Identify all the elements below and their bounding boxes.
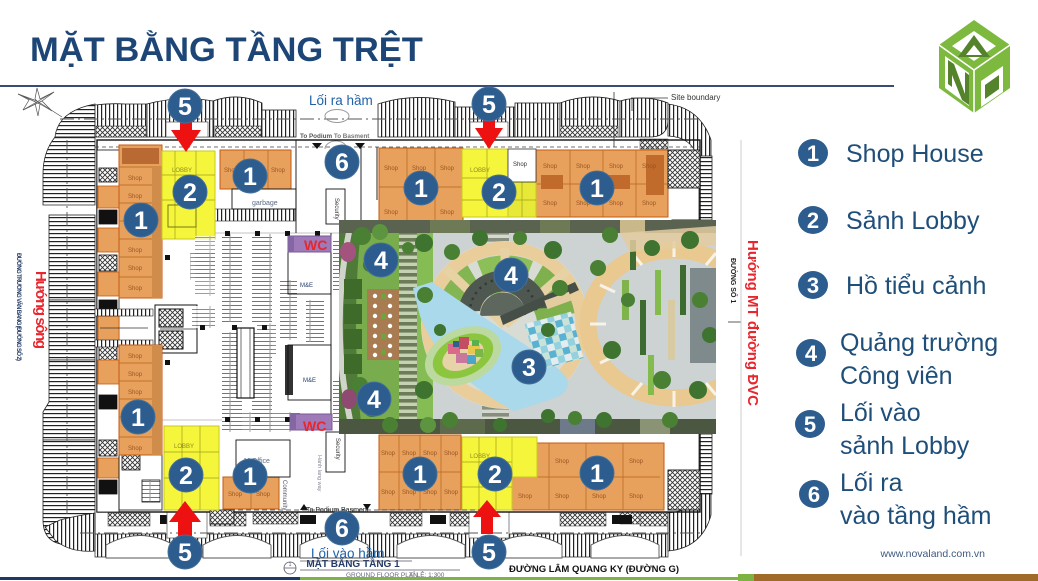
svg-text:Shop: Shop bbox=[513, 162, 528, 168]
svg-text:LOBBY: LOBBY bbox=[470, 454, 490, 460]
svg-text:Shop: Shop bbox=[555, 494, 570, 500]
svg-text:garbage: garbage bbox=[252, 200, 278, 207]
svg-text:Shop: Shop bbox=[592, 494, 607, 500]
svg-text:Shop: Shop bbox=[609, 201, 624, 207]
svg-text:Hành lang way: Hành lang way bbox=[316, 455, 322, 492]
svg-text:Shop: Shop bbox=[402, 451, 417, 457]
svg-text:Shop: Shop bbox=[128, 286, 143, 292]
svg-text:Shop: Shop bbox=[381, 451, 396, 457]
svg-text:Shop: Shop bbox=[128, 212, 143, 218]
svg-text:Shop: Shop bbox=[256, 492, 271, 498]
svg-text:Shop: Shop bbox=[384, 210, 399, 216]
svg-text:Shop: Shop bbox=[555, 459, 570, 465]
svg-text:To Podium To Basment: To Podium To Basment bbox=[300, 133, 370, 140]
svg-text:Shop: Shop bbox=[402, 490, 417, 496]
svg-text:Shop: Shop bbox=[543, 164, 558, 170]
svg-text:Shop: Shop bbox=[228, 492, 243, 498]
svg-text:Shop: Shop bbox=[128, 176, 143, 182]
svg-text:Security: Security bbox=[333, 198, 339, 220]
svg-text:Shop: Shop bbox=[444, 490, 459, 496]
svg-text:Shop: Shop bbox=[128, 446, 143, 452]
svg-text:Shop: Shop bbox=[576, 164, 591, 170]
svg-text:MẶT BẰNG TẦNG TRỆT: MẶT BẰNG TẦNG TRỆT bbox=[30, 29, 423, 69]
svg-text:M&E: M&E bbox=[303, 378, 316, 384]
svg-text:LOBBY: LOBBY bbox=[172, 168, 192, 174]
svg-text:Shop: Shop bbox=[412, 166, 427, 172]
svg-text:Site boundary: Site boundary bbox=[671, 93, 720, 102]
svg-text:Shop: Shop bbox=[642, 201, 657, 207]
svg-text:M.Office: M.Office bbox=[244, 458, 270, 465]
svg-text:Shop: Shop bbox=[128, 248, 143, 254]
svg-text:Shop: Shop bbox=[440, 210, 455, 216]
svg-text:WC: WC bbox=[303, 418, 326, 434]
svg-text:Shop: Shop bbox=[444, 451, 459, 457]
svg-text:Shop: Shop bbox=[224, 168, 239, 174]
svg-text:Shop: Shop bbox=[576, 201, 591, 207]
svg-text:Shop: Shop bbox=[423, 490, 438, 496]
svg-text:Shop: Shop bbox=[629, 494, 644, 500]
svg-text:Shop: Shop bbox=[642, 164, 657, 170]
svg-text:Shop: Shop bbox=[609, 164, 624, 170]
svg-text:Community: Community bbox=[281, 480, 287, 510]
svg-text:LOBBY: LOBBY bbox=[470, 168, 490, 174]
svg-text:Shop: Shop bbox=[381, 490, 396, 496]
svg-text:Shop: Shop bbox=[543, 201, 558, 207]
svg-text:Shop: Shop bbox=[128, 390, 143, 396]
svg-text:Shop: Shop bbox=[271, 168, 286, 174]
svg-text:To Podium Basment: To Podium Basment bbox=[306, 507, 369, 514]
svg-text:Shop: Shop bbox=[518, 494, 533, 500]
svg-text:Shop: Shop bbox=[128, 354, 143, 360]
svg-text:WC: WC bbox=[304, 237, 327, 253]
svg-text:Shop: Shop bbox=[629, 459, 644, 465]
svg-text:Shop: Shop bbox=[592, 459, 607, 465]
svg-text:Shop: Shop bbox=[440, 166, 455, 172]
svg-text:Shop: Shop bbox=[423, 451, 438, 457]
svg-text:Shop: Shop bbox=[384, 166, 399, 172]
svg-text:Shop: Shop bbox=[128, 266, 143, 272]
svg-text:Shop: Shop bbox=[128, 372, 143, 378]
svg-text:LOBBY: LOBBY bbox=[174, 444, 194, 450]
svg-text:Security: Security bbox=[334, 438, 340, 460]
svg-text:M&E: M&E bbox=[300, 283, 313, 289]
svg-text:Shop: Shop bbox=[248, 168, 263, 174]
svg-text:Shop: Shop bbox=[128, 194, 143, 200]
